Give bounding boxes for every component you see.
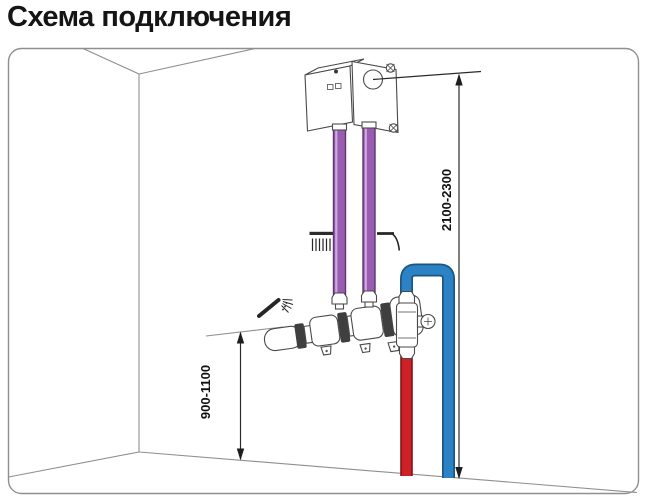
manifold-top-nut (399, 292, 415, 304)
valve-height-label: 900-1100 (198, 365, 213, 419)
page: { "page": { "title": "Схема подключения"… (0, 0, 646, 500)
valve-body-2 (350, 305, 384, 341)
manifold-bottom-nut (400, 347, 415, 359)
junction-box-front (305, 66, 353, 131)
mounting-tab-bottom (389, 124, 397, 132)
install-height-label: 2100-2300 (439, 169, 454, 231)
valve-body-1 (309, 314, 341, 347)
mounting-tab-top (386, 64, 394, 72)
box-screw (334, 70, 338, 74)
hose-nut-left (332, 293, 347, 304)
connection-diagram: 2100-2300 900-1100 (0, 0, 646, 500)
hose-nut-right (362, 291, 377, 302)
manifold-body (397, 303, 418, 347)
hose-fitting-right (362, 122, 376, 128)
hose-nut-right-neck (365, 302, 373, 307)
hose-nut-left-neck (336, 304, 344, 309)
hose-fitting-left (333, 124, 347, 130)
